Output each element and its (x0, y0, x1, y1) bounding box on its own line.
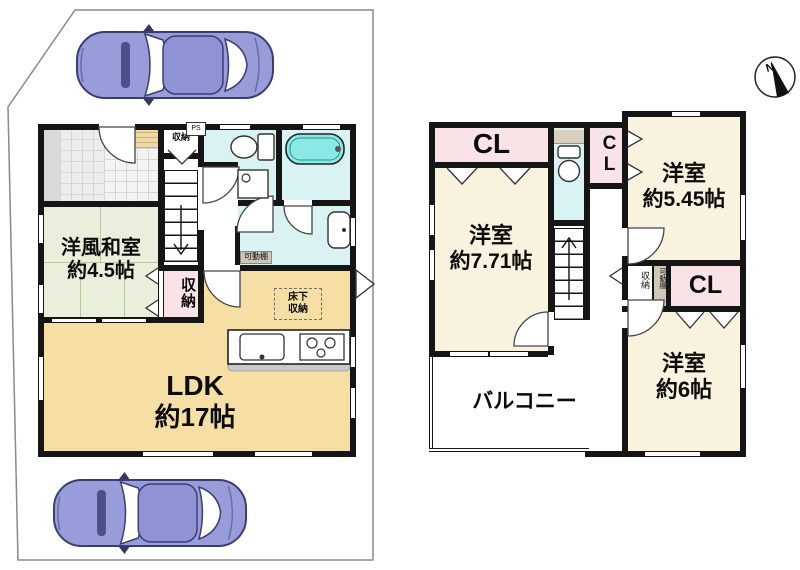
room545-name-label: 洋室 (628, 162, 740, 186)
window-marker (220, 124, 250, 130)
window-marker (255, 451, 312, 457)
stairs-1f (164, 170, 198, 262)
sliding-door (102, 319, 146, 322)
wall-2f-inner (584, 128, 590, 226)
wall-1f-inner (276, 124, 282, 206)
compass: N (755, 57, 795, 97)
room6-size-label: 約6帖 (628, 378, 740, 402)
balcony-rail-bottom (429, 448, 589, 452)
parking-car-bottom (54, 472, 246, 554)
balcony-label: バルコニー (437, 390, 612, 413)
window-marker (672, 111, 700, 117)
room-toilet-1f (198, 130, 278, 162)
stairs-2f (554, 228, 584, 320)
closet-door-left (610, 268, 622, 284)
ldk-name-label: LDK (120, 371, 270, 402)
cl-right-label: CL (671, 272, 740, 300)
entrance-step (104, 128, 158, 148)
wall-1f-inner (44, 201, 164, 207)
wall-2f-inner (584, 226, 590, 320)
balcony-rail-left (429, 357, 433, 451)
back-door-swing (356, 270, 374, 298)
wall-2f-inner (622, 260, 746, 266)
door-gap (622, 228, 628, 256)
window-marker (303, 124, 340, 130)
window-marker (38, 285, 44, 313)
movable-shelf-label-1f: 可動棚 (240, 253, 272, 262)
ps-label: PS (186, 122, 206, 136)
window-divider (488, 351, 490, 357)
cl-mid-label: CL (593, 133, 619, 175)
entrance-hall (104, 148, 158, 204)
toilet-door-swing (203, 167, 239, 203)
genkan-tile (60, 128, 104, 204)
storage-2f-label: 収納 (631, 271, 649, 289)
underfloor-label-2: 収納 (274, 304, 322, 315)
parking-car-top (77, 24, 273, 106)
door-gap (622, 300, 628, 328)
room771-size-label: 約7.71帖 (431, 250, 551, 273)
wall-1f-inner (240, 265, 354, 271)
floorplan-canvas: N 収納 PS 洋風和室 約4.5帖 収納 可動棚 床下 収納 LDK 約17帖… (0, 0, 800, 570)
washitsu-name-label: 洋風和室 (41, 237, 161, 259)
window-marker (350, 337, 356, 367)
cl-top-label: CL (435, 129, 548, 160)
movable-shelf-2f-label: 可動棚 (654, 268, 666, 289)
wall-1f-inner (164, 153, 198, 159)
compass-n-label: N (765, 61, 776, 75)
door-gap (284, 200, 312, 206)
wall-2f-inner (622, 306, 746, 312)
room545-size-label: 約5.45帖 (626, 188, 742, 211)
wall-2f-inner (590, 183, 622, 189)
sliding-door (52, 319, 96, 322)
room771-name-label: 洋室 (431, 224, 551, 248)
door-gap (548, 312, 554, 346)
wall-2f-inner (435, 162, 548, 168)
wall-1f-inner (198, 271, 204, 322)
room-washroom (238, 162, 350, 265)
underfloor-label-1: 床下 (274, 292, 322, 303)
entrance-porch (44, 128, 60, 204)
window-marker (740, 345, 746, 388)
wall-2f-top (429, 122, 628, 128)
wall-2f-right (740, 111, 746, 457)
washitsu-size-label: 約4.5帖 (41, 260, 161, 282)
window-marker (143, 451, 213, 457)
window-marker (350, 218, 356, 246)
window-marker (645, 451, 700, 457)
compass-needle (771, 61, 789, 97)
ldk-size-label: 約17帖 (120, 403, 270, 432)
side-storage-label: 収納 (167, 277, 195, 309)
door-gap (198, 167, 204, 230)
room6-name-label: 洋室 (628, 352, 740, 376)
wall-1f-inner (198, 162, 238, 167)
front-door-gap (99, 124, 135, 130)
window-marker (38, 357, 44, 400)
toilet-counter (554, 130, 584, 144)
window-marker (350, 388, 356, 418)
wall-2f-inner (548, 220, 590, 226)
